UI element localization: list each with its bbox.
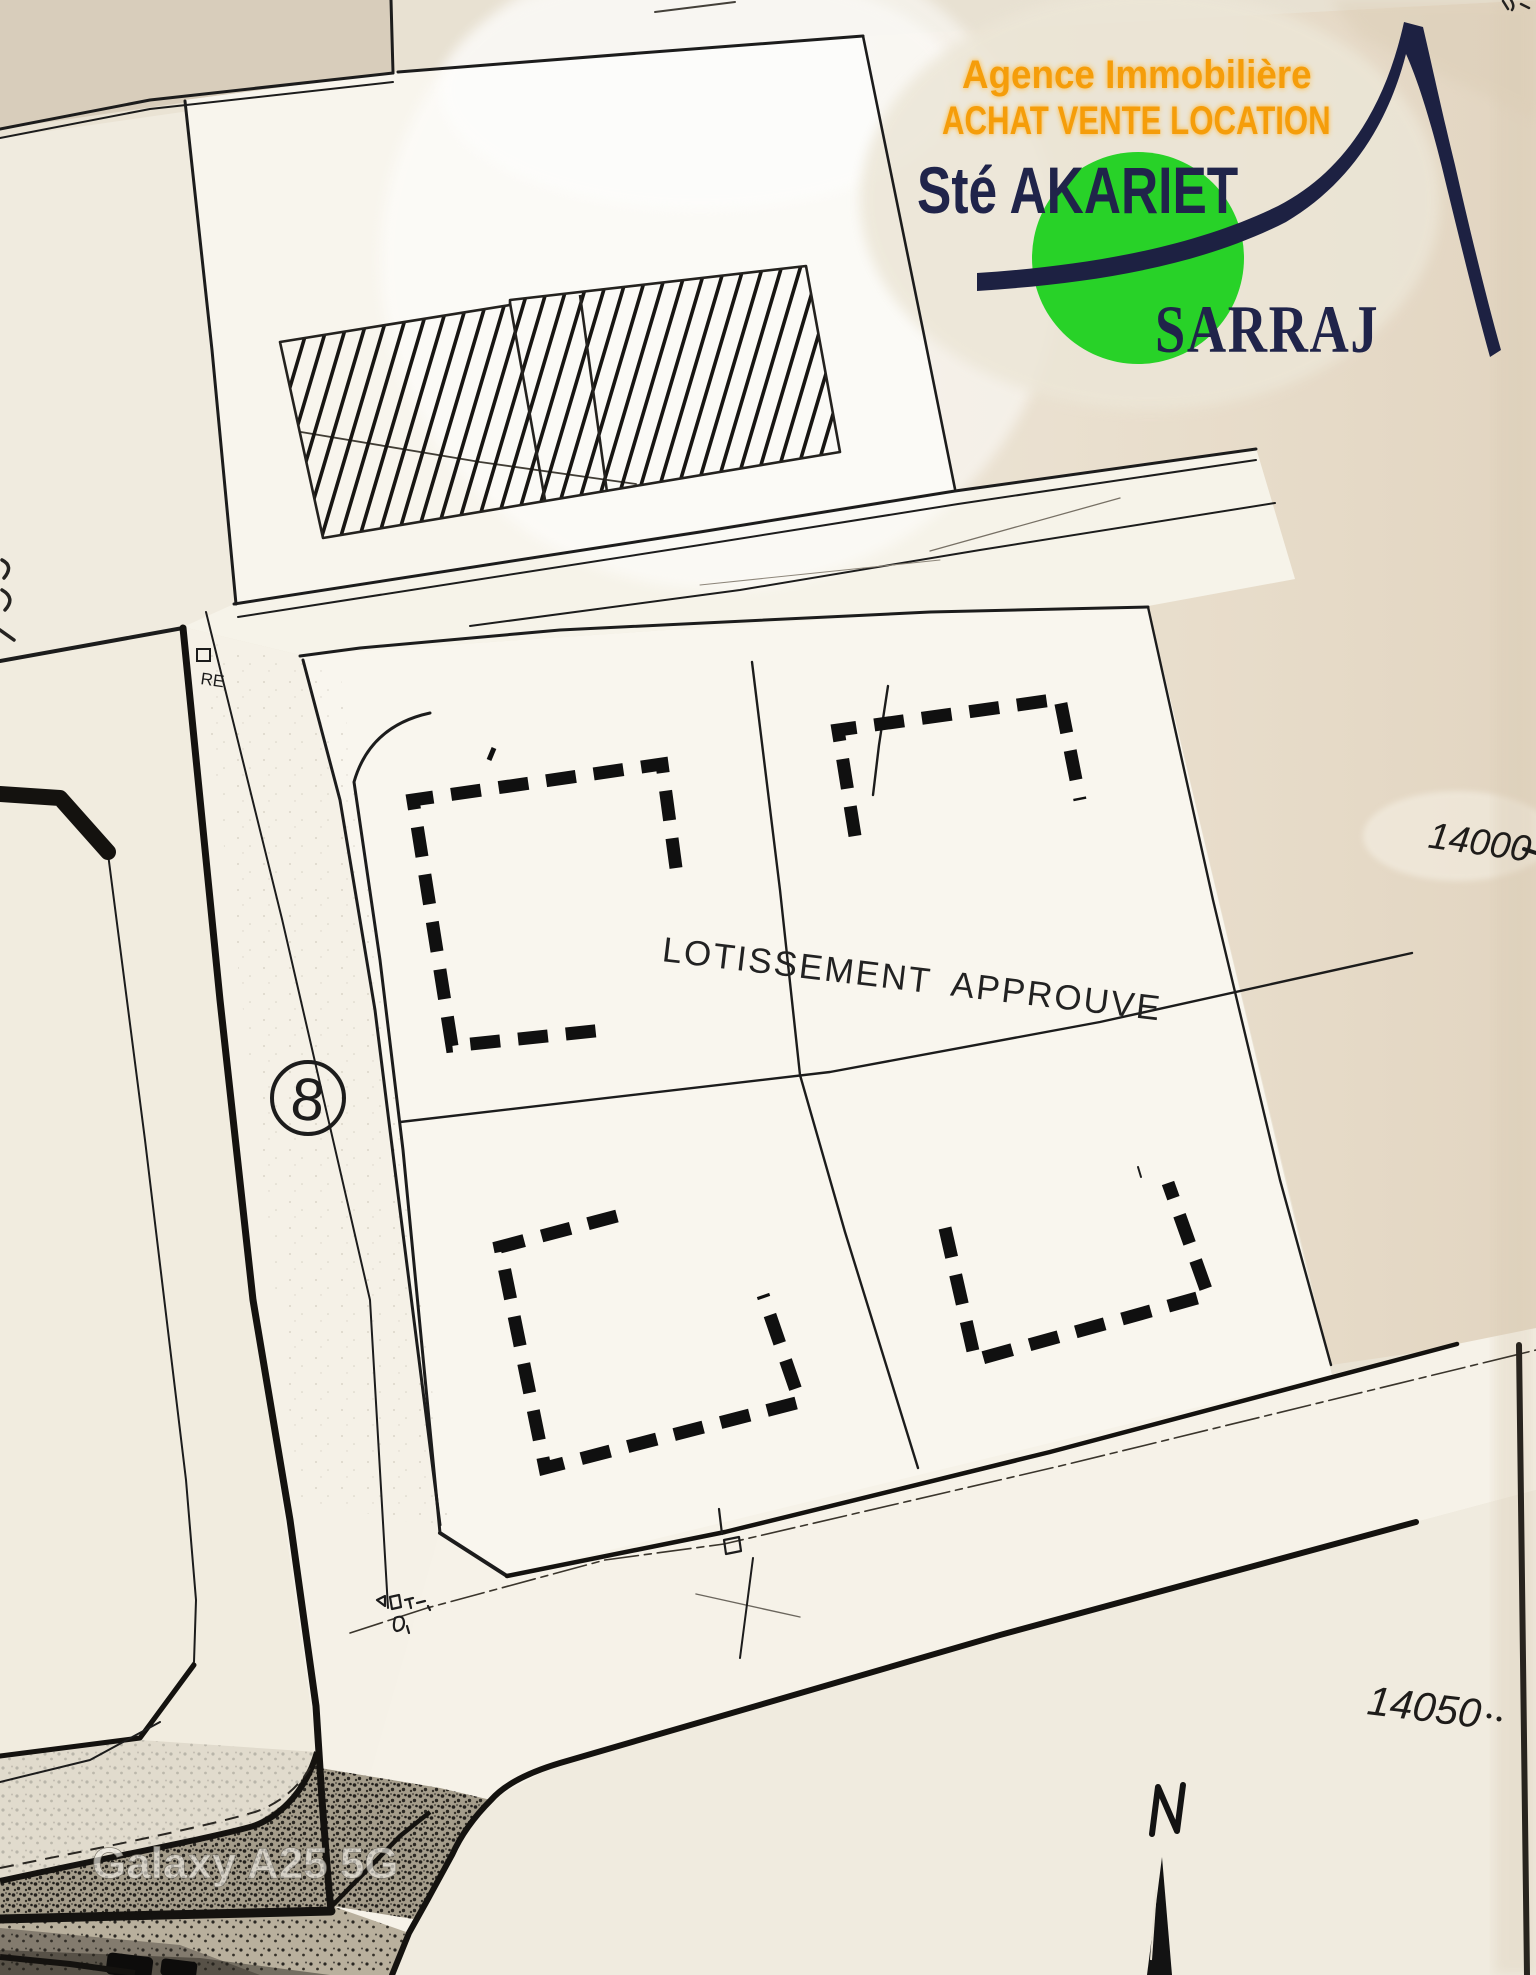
svg-text:SARRAJ: SARRAJ — [1155, 292, 1379, 367]
svg-text:Agence Immobilière: Agence Immobilière — [962, 53, 1312, 98]
svg-text:8: 8 — [288, 1064, 328, 1134]
svg-text:RE: RE — [199, 669, 225, 691]
svg-text:ACHAT VENTE LOCATION: ACHAT VENTE LOCATION — [942, 98, 1331, 143]
svg-text:Sté AKARIET: Sté AKARIET — [917, 153, 1238, 228]
svg-text:Galaxy A25 5G: Galaxy A25 5G — [92, 1839, 399, 1888]
